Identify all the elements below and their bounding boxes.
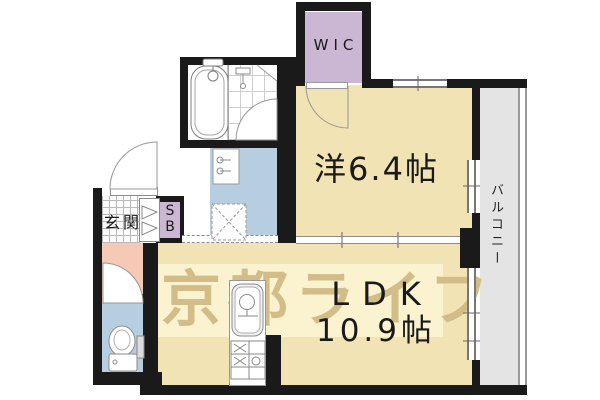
bathtub-icon — [191, 59, 228, 139]
ldk-label-line2: 10.9帖 — [295, 313, 457, 350]
wic-door-arc-icon — [306, 86, 348, 128]
ldk-label: LDK 10.9帖 — [295, 276, 457, 350]
balcony-label: バルコニー — [486, 183, 505, 268]
bathroom-door-arc-icon — [236, 99, 277, 140]
washbasin-icon — [213, 149, 239, 184]
floor-plan: 京都ライフ — [0, 0, 600, 400]
hall-door-arc-icon — [103, 263, 143, 303]
kitchen-sink-icon — [232, 284, 263, 336]
ldk-label-line1: LDK — [295, 276, 457, 313]
shower-faucet-icon — [236, 68, 250, 89]
entrance-label: 玄関 — [104, 209, 142, 233]
toilet-icon — [109, 326, 144, 371]
entrance-door-triangles-icon — [142, 206, 157, 235]
shoe-box-label: SB — [162, 203, 178, 235]
shower-corner — [257, 65, 277, 81]
entrance-door-arc-icon — [110, 142, 157, 189]
wic-label: WIC — [304, 36, 363, 54]
washing-machine-space — [212, 204, 246, 240]
bedroom-label: 洋6.4帖 — [299, 144, 454, 190]
stove-icon — [231, 341, 265, 379]
